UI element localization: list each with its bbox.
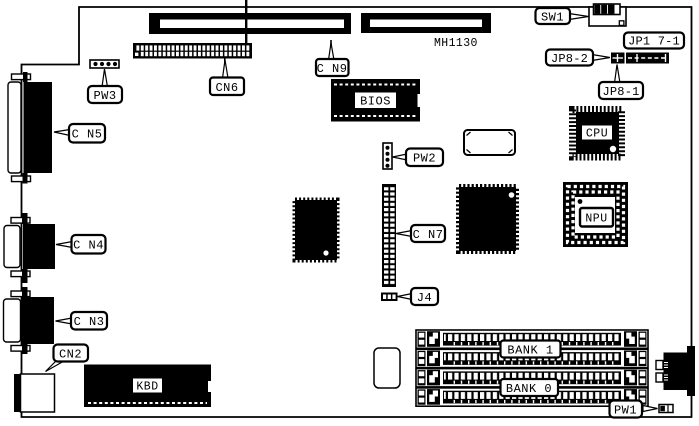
svg-text:SW1: SW1 [541,11,564,25]
svg-text:PW1: PW1 [614,404,637,418]
svg-text:JP8-2: JP8-2 [551,52,588,66]
svg-text:MH1130: MH1130 [434,37,478,50]
svg-text:C N9: C N9 [317,62,348,76]
svg-text:NPU: NPU [585,213,607,226]
svg-text:PW3: PW3 [93,89,116,103]
svg-text:JP1 7-1: JP1 7-1 [628,35,680,49]
svg-text:C N5: C N5 [72,128,103,142]
svg-text:JP8-1: JP8-1 [602,85,639,99]
svg-text:CPU: CPU [586,128,608,141]
svg-text:BIOS: BIOS [360,95,391,109]
svg-text:KBD: KBD [136,381,158,394]
svg-text:C N3: C N3 [74,315,105,329]
svg-text:BANK 0: BANK 0 [506,382,552,396]
svg-text:BANK 1: BANK 1 [507,344,553,358]
svg-text:CN2: CN2 [59,348,82,362]
svg-text:PW2: PW2 [413,152,436,166]
svg-text:CN6: CN6 [215,81,238,95]
svg-text:J4: J4 [417,291,432,305]
svg-text:C N7: C N7 [413,228,444,242]
svg-text:C N4: C N4 [73,239,104,253]
